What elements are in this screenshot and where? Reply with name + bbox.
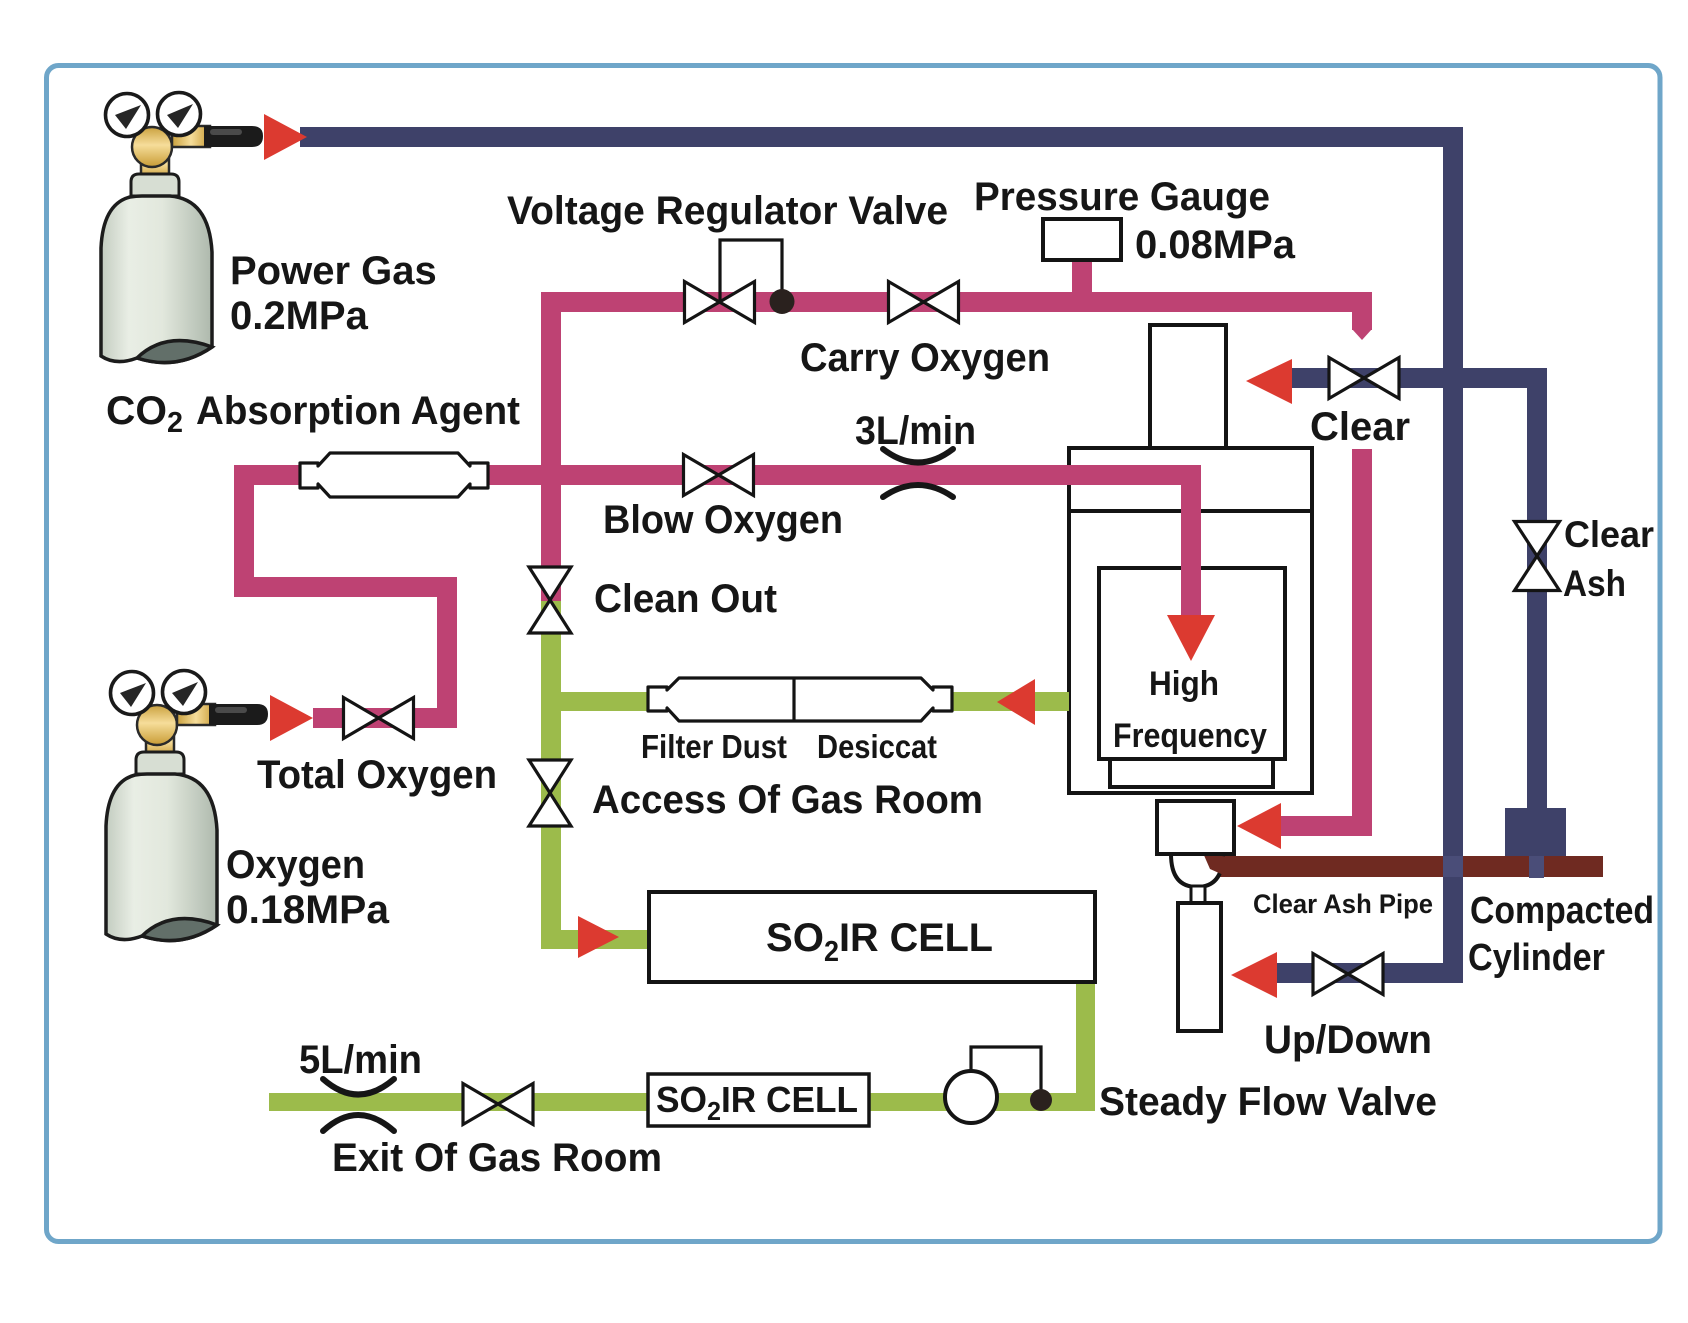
svg-text:Pressure Gauge: Pressure Gauge	[974, 175, 1270, 219]
svg-text:IR CELL: IR CELL	[721, 1079, 858, 1120]
svg-text:2: 2	[824, 936, 839, 968]
svg-text:0.18MPa: 0.18MPa	[226, 888, 390, 932]
svg-text:0.2MPa: 0.2MPa	[230, 294, 369, 338]
svg-text:2: 2	[707, 1096, 721, 1126]
svg-text:Frequency: Frequency	[1113, 717, 1267, 755]
svg-text:Clear Ash Pipe: Clear Ash Pipe	[1253, 889, 1433, 919]
svg-text:Blow Oxygen: Blow Oxygen	[603, 498, 843, 542]
svg-text:SO: SO	[656, 1079, 707, 1120]
svg-text:Cylinder: Cylinder	[1468, 937, 1605, 979]
svg-text:IR CELL: IR CELL	[839, 916, 993, 960]
svg-text:High: High	[1149, 665, 1219, 703]
svg-text:CO: CO	[106, 389, 167, 433]
svg-text:Desiccat: Desiccat	[817, 728, 937, 765]
svg-text:Absorption Agent: Absorption Agent	[196, 389, 520, 433]
svg-text:3L/min: 3L/min	[855, 409, 976, 453]
svg-text:Clear: Clear	[1310, 405, 1410, 449]
svg-text:Voltage Regulator Valve: Voltage Regulator Valve	[507, 189, 948, 233]
svg-text:Filter Dust: Filter Dust	[641, 728, 787, 765]
svg-text:Carry Oxygen: Carry Oxygen	[800, 336, 1050, 380]
svg-text:Exit Of Gas Room: Exit Of Gas Room	[332, 1136, 662, 1180]
svg-text:0.08MPa: 0.08MPa	[1135, 223, 1296, 267]
svg-text:SO: SO	[766, 916, 824, 960]
svg-text:Up/Down: Up/Down	[1264, 1018, 1432, 1062]
svg-text:5L/min: 5L/min	[299, 1038, 422, 1082]
svg-text:Clear: Clear	[1564, 514, 1654, 555]
svg-text:Total Oxygen: Total Oxygen	[257, 753, 497, 797]
svg-text:Ash: Ash	[1563, 563, 1626, 604]
svg-text:Compacted: Compacted	[1470, 890, 1654, 932]
svg-text:Oxygen: Oxygen	[226, 843, 365, 887]
svg-text:Power Gas: Power Gas	[230, 249, 437, 293]
svg-text:2: 2	[167, 407, 183, 439]
svg-text:Steady Flow Valve: Steady Flow Valve	[1099, 1080, 1437, 1124]
svg-text:Access Of Gas Room: Access Of Gas Room	[592, 778, 983, 822]
svg-text:Clean Out: Clean Out	[594, 577, 777, 621]
